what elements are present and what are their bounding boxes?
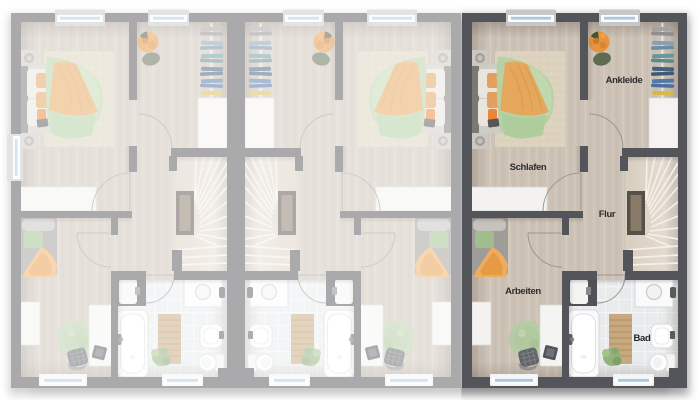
svg-text:Ankleide: Ankleide	[606, 75, 643, 86]
svg-text:Bad: Bad	[634, 333, 651, 344]
svg-text:Flur: Flur	[599, 209, 616, 220]
svg-text:Arbeiten: Arbeiten	[505, 286, 541, 297]
svg-text:Schlafen: Schlafen	[510, 162, 547, 173]
